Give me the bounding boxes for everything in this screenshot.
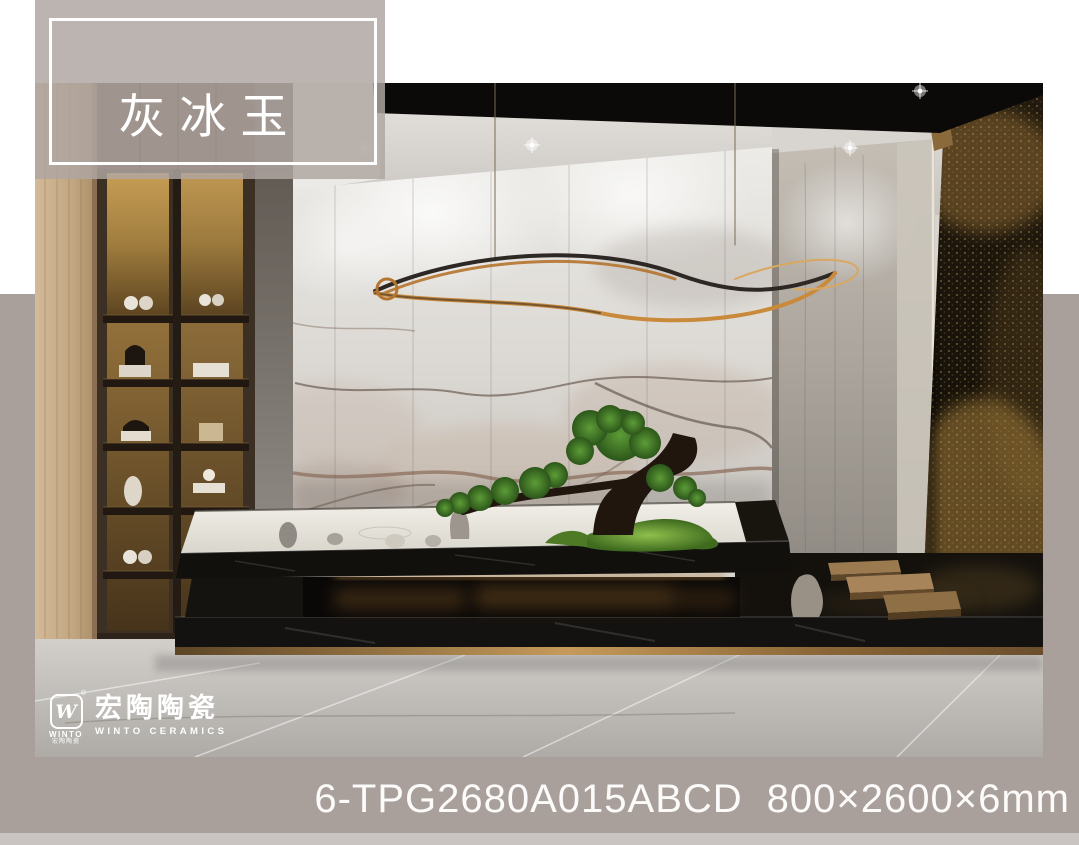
showroom-scene <box>35 83 1043 757</box>
logo-wordmarks: 宏陶陶瓷 WINTO CERAMICS <box>95 694 227 737</box>
brand-name-cn: 宏陶陶瓷 <box>95 694 227 722</box>
product-code: 6-TPG2680A015ABCD <box>314 777 742 821</box>
showroom-photo <box>35 83 1043 757</box>
footer-strip <box>0 833 1079 845</box>
logo-mark-block: W ® WINTO 宏陶陶瓷 <box>48 694 84 746</box>
product-label: 灰冰玉 <box>35 0 385 179</box>
logo-sub-en: WINTO <box>48 731 84 739</box>
gray-marble-column <box>772 139 935 598</box>
zen-platform-mid <box>185 574 740 617</box>
registered-mark: ® <box>81 690 86 697</box>
winto-logo-mark: W <box>50 694 83 729</box>
logo-sub-cn: 宏陶陶瓷 <box>48 739 84 746</box>
poster: 灰冰玉 W ® WINTO 宏陶陶瓷 宏陶陶瓷 WINTO CERAMICS 6… <box>0 0 1079 845</box>
zen-platform-base <box>175 617 1043 655</box>
product-name-title: 灰冰玉 <box>35 93 385 140</box>
product-info-line: 6-TPG2680A015ABCD800×2600×6mm <box>314 779 1070 819</box>
brand-logo: W ® WINTO 宏陶陶瓷 宏陶陶瓷 WINTO CERAMICS <box>48 694 227 746</box>
brand-name-en: WINTO CERAMICS <box>95 727 227 737</box>
product-dimensions: 800×2600×6mm <box>767 777 1070 821</box>
